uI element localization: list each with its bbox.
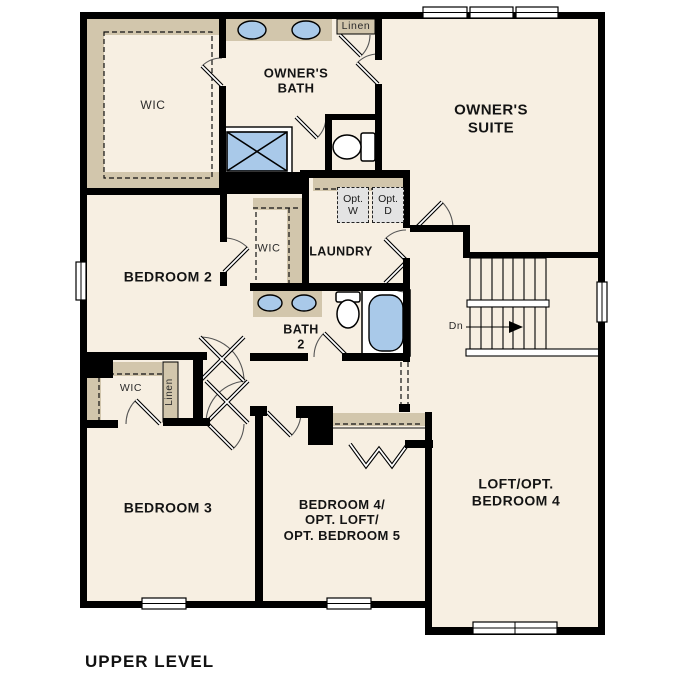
windows-layer [0,0,687,687]
loft-label: LOFT/OPT. BEDROOM 4 [472,475,560,508]
opt-washer-label-line1: Opt. [343,193,363,205]
opt-dryer-box: Opt. D [372,187,404,223]
bedroom2-label: BEDROOM 2 [124,269,212,286]
opt-washer-box: Opt. W [337,187,369,223]
bedroom4-label-line2: OPT. LOFT/ [284,512,401,527]
linen-upper-label: Linen [342,20,371,32]
floor-plan: WIC OWNER'S BATH Linen OWNER'S SUITE BED… [0,0,687,687]
stairs-down-label: Dn [449,320,464,332]
owners-wic-label: WIC [140,98,165,112]
bedroom3-wic-label: WIC [120,382,142,394]
owners-bath-label: OWNER'S BATH [264,66,328,97]
plan-title: UPPER LEVEL [85,652,214,672]
owners-bath-label-line2: BATH [264,81,328,96]
hall-wic-label: WIC [257,243,280,256]
bedroom4-label-line1: BEDROOM 4/ [284,497,401,512]
owners-suite-label-line2: SUITE [454,119,528,137]
opt-washer-label-line2: W [348,205,358,217]
opt-dryer-label-line1: Opt. [378,193,398,205]
bath2-label: BATH 2 [283,322,318,352]
loft-label-line1: LOFT/OPT. [472,475,560,492]
bath2-label-line1: BATH [283,322,318,337]
laundry-label: LAUNDRY [309,245,372,260]
owners-suite-label-line1: OWNER'S [454,101,528,119]
bath2-label-line2: 2 [283,337,318,352]
linen-lower-label: Linen [164,378,176,405]
owners-bath-label-line1: OWNER'S [264,66,328,81]
opt-dryer-label-line2: D [384,205,392,217]
loft-label-line2: BEDROOM 4 [472,492,560,509]
bedroom3-label: BEDROOM 3 [124,500,212,517]
bedroom4-label: BEDROOM 4/ OPT. LOFT/ OPT. BEDROOM 5 [284,497,401,543]
bedroom4-label-line3: OPT. BEDROOM 5 [284,528,401,543]
owners-suite-label: OWNER'S SUITE [454,101,528,136]
